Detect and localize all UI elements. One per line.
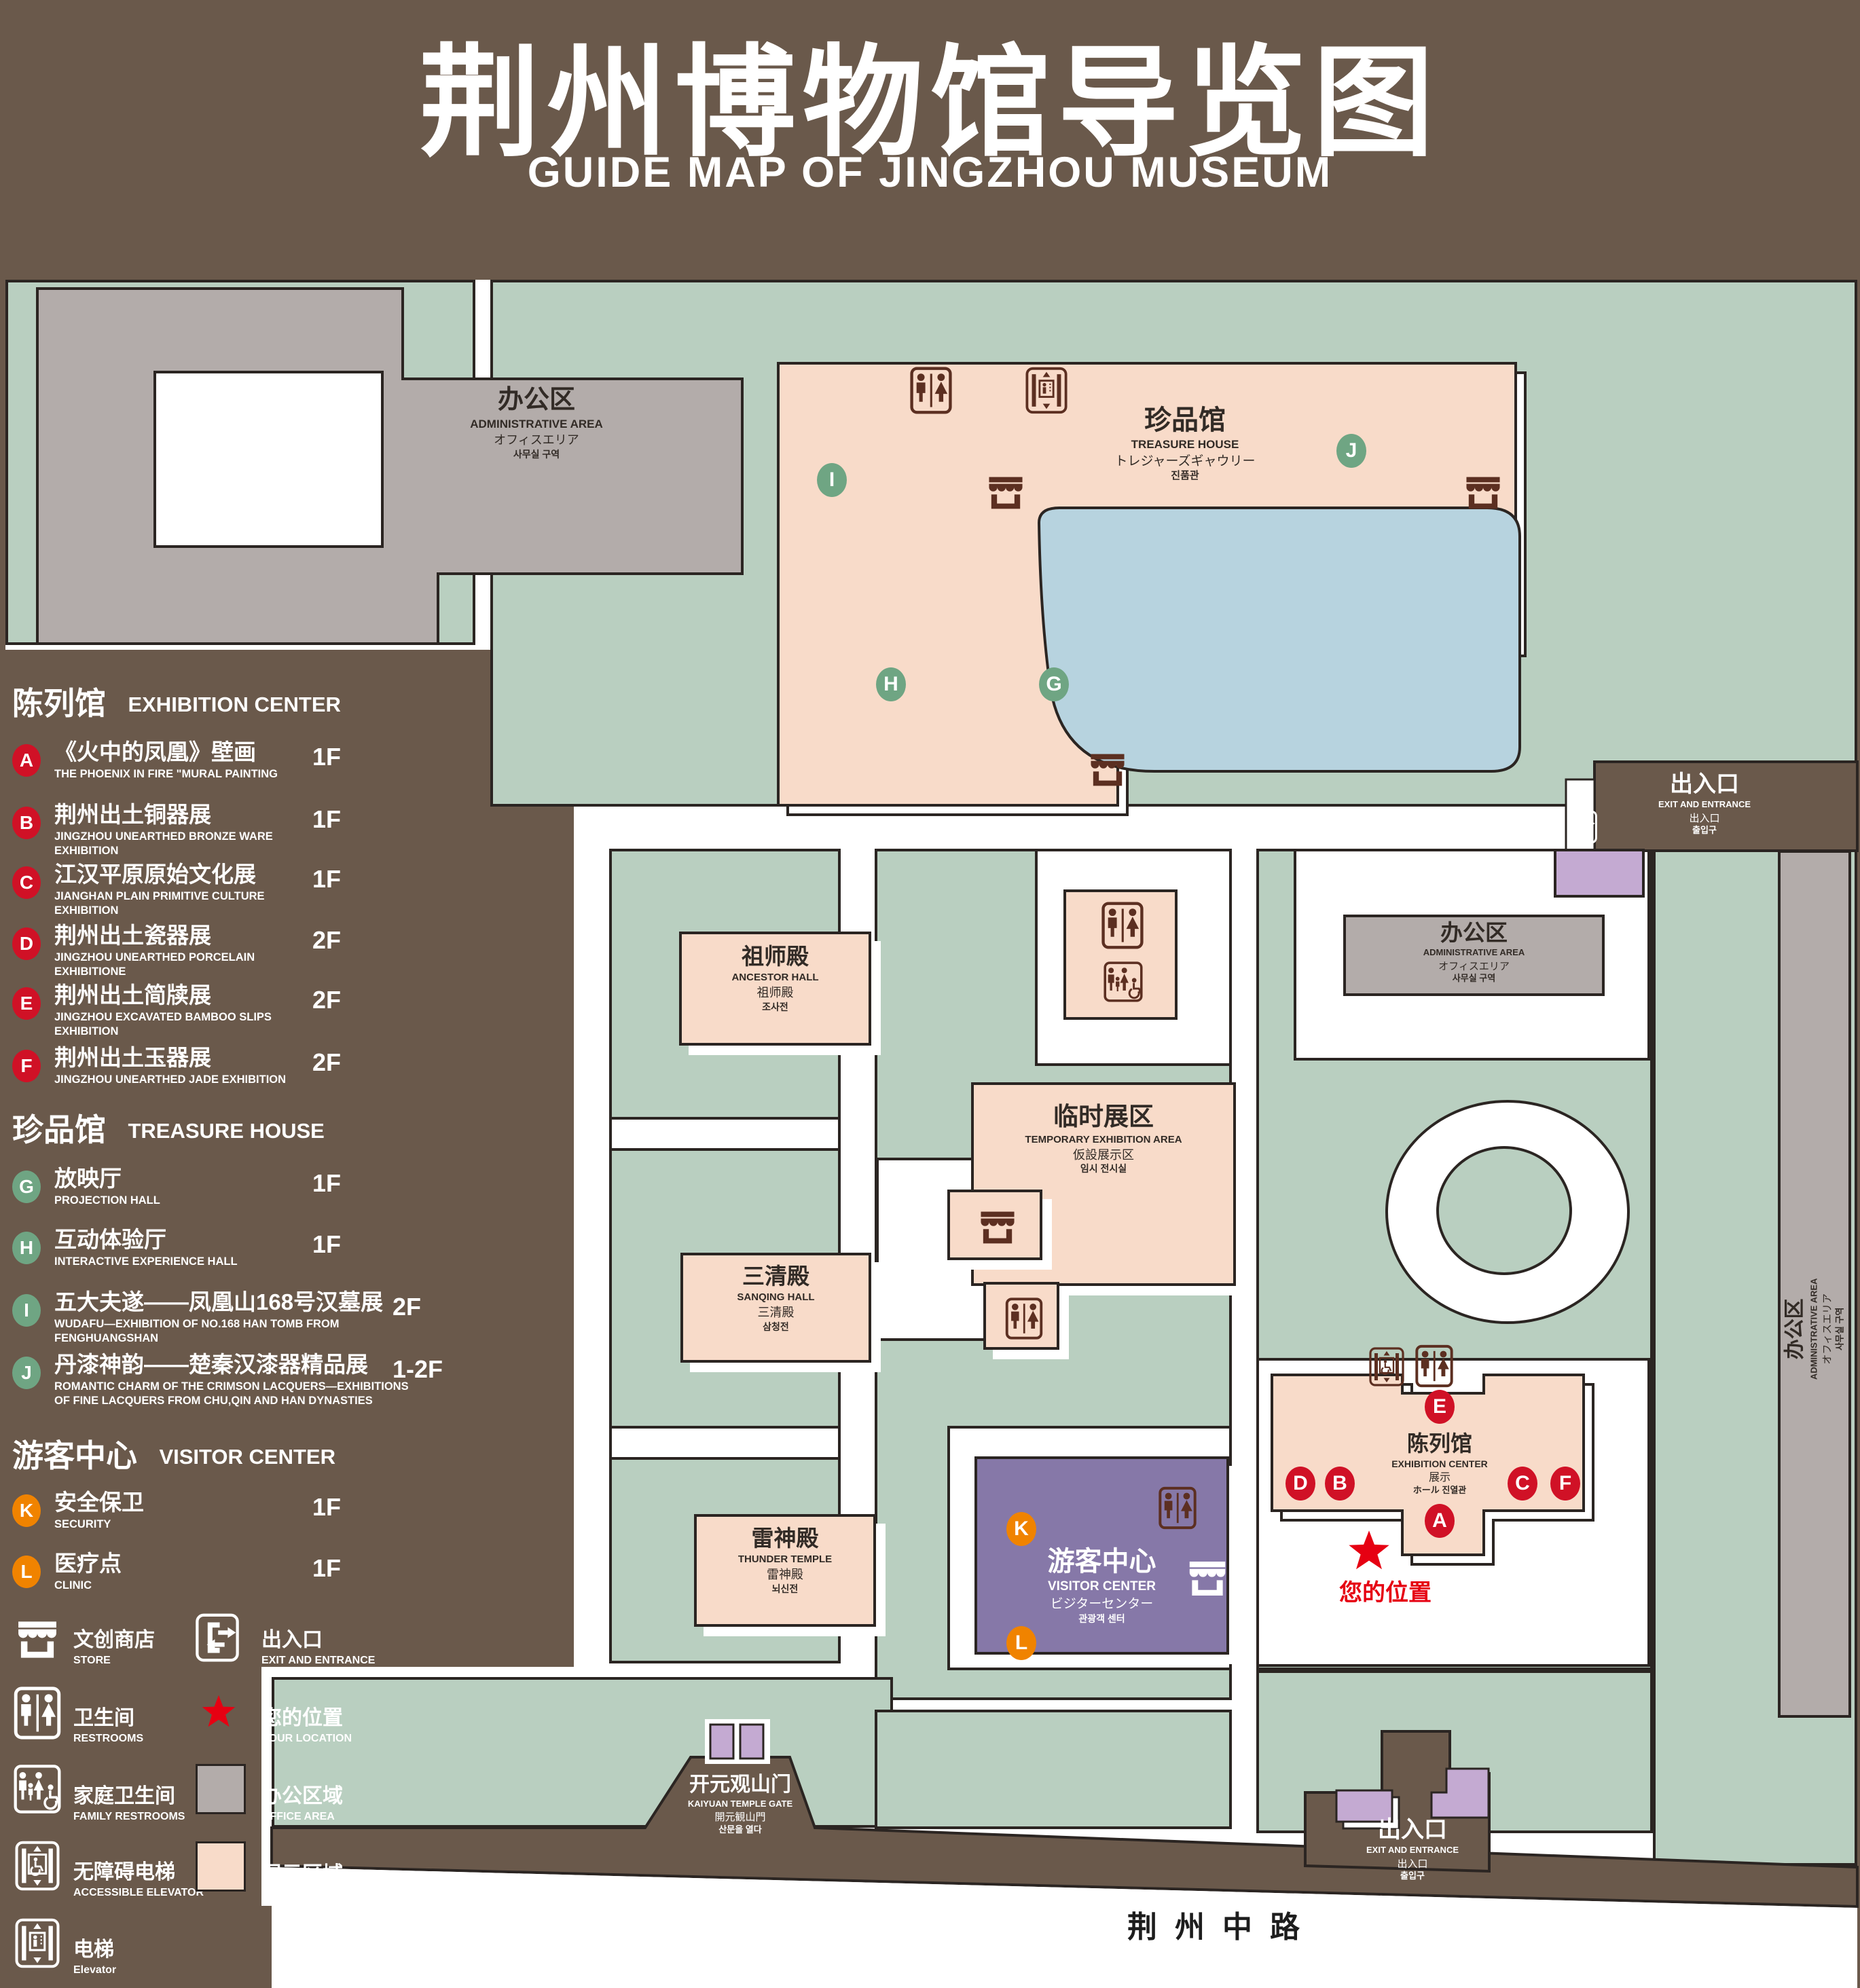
badge-l: L — [12, 1556, 41, 1588]
accessible-elevator-icon — [1369, 1346, 1404, 1388]
your-location-label: 您的位置 — [1304, 1574, 1467, 1607]
accessible-elevator-icon — [15, 1839, 60, 1893]
map-badge-e: E — [1425, 1390, 1455, 1424]
badge-b: B — [12, 807, 41, 839]
map-badge-c: C — [1508, 1467, 1537, 1501]
map-badge-g: G — [1039, 667, 1069, 701]
legend-section-visitor-center: 游客中心 VISITOR CENTER — [12, 1431, 596, 1476]
store-icon — [1463, 475, 1503, 511]
badge-j: J — [12, 1357, 41, 1389]
restroom-icon — [1005, 1297, 1043, 1340]
legend-display-area-label: 展示区域DISPLAY AREA — [261, 1857, 438, 1901]
store-icon — [1186, 1560, 1228, 1598]
legend-section-treasure-house: 珍品馆 TREASURE HOUSE — [12, 1105, 596, 1150]
map-badge-h: H — [876, 667, 906, 701]
badge-d: D — [12, 927, 41, 960]
badge-e: E — [12, 987, 41, 1020]
guide-map-poster: { "title": {"cn": "荆州博物馆导览图", "en": "GUI… — [0, 0, 1860, 1988]
legend-your-location-label: 您的位置YOUR LOCATION — [261, 1701, 438, 1745]
badge-f: F — [12, 1050, 41, 1082]
map-badge-d: D — [1285, 1467, 1315, 1501]
badge-g: G — [12, 1171, 41, 1203]
elevator-icon — [15, 1916, 60, 1970]
gate-tower-left — [710, 1725, 733, 1759]
badge-h: H — [12, 1232, 41, 1264]
elevator-icon — [1025, 367, 1068, 414]
admin-mid-building: 办公区 ADMINISTRATIVE AREA オフィスエリア 사무실 구역 — [1343, 915, 1605, 996]
legend-item-f: F 荆州出土玉器展JINGZHOU UNEARTHED JADE EXHIBIT… — [12, 1046, 488, 1108]
gate-label: 开元观山门 KAIYUAN TEMPLE GATE 開元観山門 산문을 열다 — [649, 1773, 832, 1835]
restroom-icon — [1415, 1344, 1453, 1388]
store-icon — [986, 475, 1025, 511]
restroom-icon — [910, 367, 952, 414]
ancestor-hall-label: 祖师殿 ANCESTOR HALL 祖师殿 조사전 — [682, 934, 869, 1012]
admin-right-building: 办公区 ADMINISTRATIVE AREA オフィスエリア 사무실 구역 — [1778, 850, 1851, 1718]
ancestor-hall-building: 祖师殿 ANCESTOR HALL 祖师殿 조사전 — [679, 932, 871, 1046]
legend-item-k: K 安全保卫SECURITY 1F — [12, 1490, 488, 1553]
legend-section-exhibition-center: 陈列馆 EXHIBITION CENTER — [12, 679, 596, 724]
store-icon — [1088, 752, 1127, 788]
display-area-swatch — [196, 1841, 246, 1892]
legend-item-e: E 荆州出土简牍展JINGZHOU EXCAVATED BAMBOO SLIPS… — [12, 983, 488, 1046]
family-restroom-icon — [1104, 960, 1143, 1004]
pond — [1039, 508, 1520, 771]
admin-right-label: 办公区 ADMINISTRATIVE AREA オフィスエリア 사무실 구역 — [1784, 1221, 1846, 1438]
purple-building-tr — [1555, 850, 1643, 896]
exhibition-center-label: 陈列馆 EXHIBITION CENTER 展示 ホール 진열관 — [1358, 1431, 1521, 1496]
restroom-icon — [14, 1687, 61, 1739]
thunder-temple-building: 雷神殿 THUNDER TEMPLE 雷神殿 뇌신전 — [694, 1514, 876, 1627]
restroom-icon — [1159, 1486, 1197, 1530]
exit-top-right-label: 出入口 EXIT AND ENTRANCE 出入口 출입구 — [1603, 771, 1806, 836]
legend-item-j: J 丹漆神韵——楚秦汉漆器精品展ROMANTIC CHARM OF THE CR… — [12, 1352, 488, 1434]
treasure-house-label: 珍品馆 TREASURE HOUSE トレジャーズギャウリー 진품관 — [1049, 405, 1321, 482]
map-badge-b: B — [1325, 1467, 1355, 1501]
legend-item-l: L 医疗点CLINIC 1F — [12, 1551, 488, 1614]
office-area-swatch — [196, 1764, 246, 1814]
map-badge-k: K — [1006, 1512, 1036, 1546]
restroom-building-small — [983, 1282, 1059, 1350]
badge-a: A — [12, 744, 41, 777]
legend-item-c: C 江汉平原原始文化展JIANGHAN PLAIN PRIMITIVE CULT… — [12, 862, 488, 925]
location-star-icon — [1347, 1529, 1391, 1572]
legend-item-g: G 放映厅PROJECTION HALL 1F — [12, 1166, 488, 1229]
map-badge-l: L — [1006, 1626, 1036, 1660]
restroom-icon — [1101, 902, 1144, 949]
legend-office-area-label: 办公区域OFFICE AREA — [261, 1779, 438, 1823]
sanqing-hall-label: 三清殿 SANQING HALL 三清殿 삼청전 — [683, 1255, 869, 1332]
location-star-icon — [200, 1694, 237, 1729]
legend-item-a: A 《火中的凤凰》壁画THE PHOENIX IN FIRE "MURAL PA… — [12, 740, 488, 803]
map-badge-i: I — [817, 463, 847, 497]
admin-top-left-label: 办公区 ADMINISTRATIVE AREA オフィスエリア 사무실 구역 — [407, 386, 665, 460]
legend-item-i: I 五大夫遂——凤凰山168号汉墓展WUDAFU—EXHIBITION OF N… — [12, 1290, 488, 1352]
map-badge-f: F — [1550, 1467, 1580, 1501]
badge-c: C — [12, 866, 41, 899]
temporary-exhibition-label: 临时展区 TEMPORARY EXHIBITION AREA 仮設展示区 임시 … — [974, 1085, 1233, 1175]
badge-i: I — [12, 1294, 41, 1327]
legend-exit-label: 出入口EXIT AND ENTRANCE — [261, 1623, 438, 1667]
legend-item-d: D 荆州出土瓷器展JINGZHOU UNEARTHED PORCELAIN EX… — [12, 923, 488, 986]
store-icon — [978, 1210, 1017, 1245]
map-badge-j: J — [1336, 434, 1366, 468]
thunder-temple-label: 雷神殿 THUNDER TEMPLE 雷神殿 뇌신전 — [697, 1517, 873, 1594]
admin-mid-label: 办公区 ADMINISTRATIVE AREA オフィスエリア 사무실 구역 — [1346, 917, 1602, 984]
visitor-center-building: 游客中心 VISITOR CENTER ビジターセンター 관광객 센터 — [974, 1456, 1229, 1655]
store-building-small — [947, 1190, 1042, 1260]
exit-icon — [1567, 809, 1597, 845]
admin-top-left-building — [37, 289, 742, 644]
gate-tower-right — [740, 1725, 763, 1759]
legend-elevator-label: 电梯Elevator — [73, 1932, 250, 1976]
legend-item-h: H 互动体验厅INTERACTIVE EXPERIENCE HALL 1F — [12, 1228, 488, 1290]
badge-k: K — [12, 1494, 41, 1527]
restroom-building-mid — [1063, 889, 1178, 1020]
exit-bottom-right-label: 出入口 EXIT AND ENTRANCE 出入口 출입구 — [1314, 1817, 1511, 1881]
map-badge-a: A — [1425, 1504, 1455, 1538]
store-icon — [15, 1619, 60, 1660]
admin-top-left-courtyard — [155, 372, 382, 547]
sanqing-hall-building: 三清殿 SANQING HALL 三清殿 삼청전 — [680, 1253, 871, 1363]
legend-item-b: B 荆州出土铜器展JINGZHOU UNEARTHED BRONZE WARE … — [12, 803, 488, 865]
road-label: 荆州中路 — [1046, 1902, 1399, 1946]
exit-icon — [196, 1613, 239, 1662]
family-restroom-icon — [14, 1763, 61, 1816]
